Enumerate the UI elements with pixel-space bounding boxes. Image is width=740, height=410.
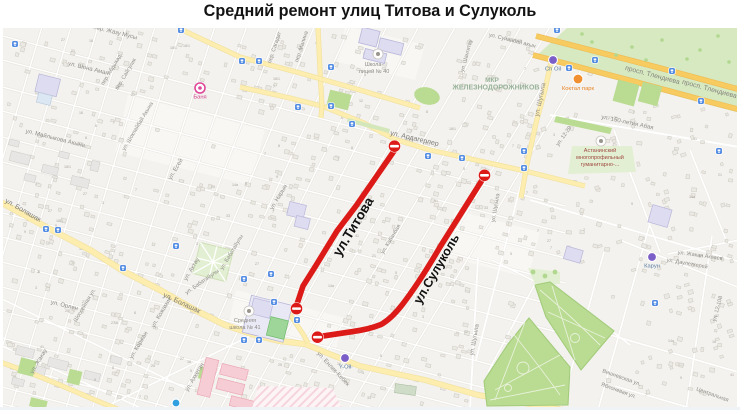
- svg-text:ЖЕЛЕЗНОДОРОЖНИКОВ: ЖЕЛЕЗНОДОРОЖНИКОВ: [452, 85, 540, 92]
- svg-text:7: 7: [113, 121, 115, 125]
- svg-text:5: 5: [510, 252, 512, 256]
- svg-text:8: 8: [112, 366, 114, 370]
- svg-text:8: 8: [85, 136, 87, 140]
- svg-text:7: 7: [139, 395, 141, 399]
- svg-text:7: 7: [583, 228, 585, 232]
- svg-text:14а: 14а: [328, 284, 334, 288]
- svg-text:33: 33: [226, 214, 230, 218]
- svg-text:лицей № 40: лицей № 40: [359, 68, 390, 75]
- svg-text:9: 9: [276, 175, 278, 179]
- svg-text:Y-Oil: Y-Oil: [339, 365, 351, 371]
- svg-text:18/1: 18/1: [449, 127, 456, 131]
- svg-text:7: 7: [537, 229, 539, 233]
- svg-text:16: 16: [187, 360, 191, 364]
- svg-text:27: 27: [48, 209, 52, 213]
- svg-text:18/1: 18/1: [183, 44, 190, 48]
- svg-text:21: 21: [131, 93, 135, 97]
- svg-text:33: 33: [484, 206, 488, 210]
- svg-text:27: 27: [255, 262, 259, 266]
- svg-text:7: 7: [512, 144, 514, 148]
- svg-text:9: 9: [24, 230, 26, 234]
- svg-text:5: 5: [94, 378, 96, 382]
- svg-text:Астанинский: Астанинский: [584, 147, 616, 154]
- svg-text:12: 12: [464, 330, 468, 334]
- svg-text:25: 25: [151, 364, 155, 368]
- svg-text:8: 8: [134, 311, 136, 315]
- svg-text:7: 7: [526, 191, 528, 195]
- svg-text:33: 33: [367, 396, 371, 400]
- svg-text:8: 8: [380, 354, 382, 358]
- svg-text:3: 3: [196, 242, 198, 246]
- svg-text:Баня: Баня: [193, 95, 206, 101]
- svg-text:7: 7: [524, 67, 526, 71]
- svg-text:41: 41: [730, 373, 734, 377]
- svg-text:7: 7: [550, 246, 552, 250]
- svg-text:9: 9: [680, 376, 682, 380]
- svg-text:7: 7: [273, 85, 275, 89]
- svg-text:Карун: Карун: [644, 264, 660, 270]
- svg-text:школа № 41: школа № 41: [229, 325, 260, 331]
- svg-text:16: 16: [114, 321, 118, 325]
- svg-text:3: 3: [102, 201, 104, 205]
- svg-text:16: 16: [79, 111, 83, 115]
- svg-text:41: 41: [434, 199, 438, 203]
- svg-text:многопрофильный: многопрофильный: [576, 154, 624, 161]
- svg-text:3: 3: [362, 371, 364, 375]
- svg-text:7: 7: [135, 188, 137, 192]
- svg-text:14а: 14а: [689, 195, 695, 199]
- svg-text:27: 27: [61, 38, 65, 42]
- svg-text:МКР: МКР: [485, 77, 499, 84]
- svg-text:18/1: 18/1: [273, 77, 280, 81]
- svg-text:21: 21: [372, 254, 376, 258]
- svg-text:21: 21: [718, 173, 722, 177]
- svg-text:3: 3: [422, 315, 424, 319]
- svg-text:8: 8: [95, 124, 97, 128]
- svg-text:7: 7: [264, 152, 266, 156]
- svg-text:14а: 14а: [668, 339, 674, 343]
- svg-text:18/1: 18/1: [56, 219, 63, 223]
- svg-text:7: 7: [633, 111, 635, 115]
- svg-text:Средняя: Средняя: [234, 318, 256, 324]
- svg-text:27: 27: [180, 357, 184, 361]
- svg-text:5: 5: [395, 271, 397, 275]
- svg-text:41: 41: [693, 137, 697, 141]
- svg-text:16: 16: [712, 340, 716, 344]
- svg-text:9: 9: [245, 182, 247, 186]
- svg-text:8: 8: [278, 144, 280, 148]
- svg-text:7: 7: [645, 393, 647, 397]
- svg-text:18/1: 18/1: [64, 165, 71, 169]
- svg-text:5: 5: [463, 167, 465, 171]
- svg-text:гуманитарно-...: гуманитарно-...: [581, 162, 620, 168]
- svg-text:18/1: 18/1: [170, 46, 177, 50]
- svg-text:9: 9: [631, 202, 633, 206]
- svg-text:Школа-: Школа-: [365, 62, 384, 68]
- svg-text:3: 3: [35, 286, 37, 290]
- svg-text:21: 21: [71, 49, 75, 53]
- svg-text:27: 27: [83, 192, 87, 196]
- svg-text:27: 27: [547, 239, 551, 243]
- svg-text:Средний ремонт улиц Титова и С: Средний ремонт улиц Титова и Сулуколь: [204, 2, 537, 20]
- svg-text:16: 16: [89, 39, 93, 43]
- svg-text:8: 8: [351, 146, 353, 150]
- svg-text:12: 12: [359, 99, 363, 103]
- svg-text:3: 3: [553, 133, 555, 137]
- svg-text:Коктал парк: Коктал парк: [562, 86, 595, 92]
- svg-text:25: 25: [211, 185, 215, 189]
- svg-text:8: 8: [426, 110, 428, 114]
- svg-text:Ch Oil: Ch Oil: [545, 67, 561, 73]
- svg-text:5: 5: [190, 369, 192, 373]
- svg-text:8: 8: [38, 270, 40, 274]
- svg-text:25: 25: [278, 363, 282, 367]
- svg-text:14а: 14а: [232, 183, 238, 187]
